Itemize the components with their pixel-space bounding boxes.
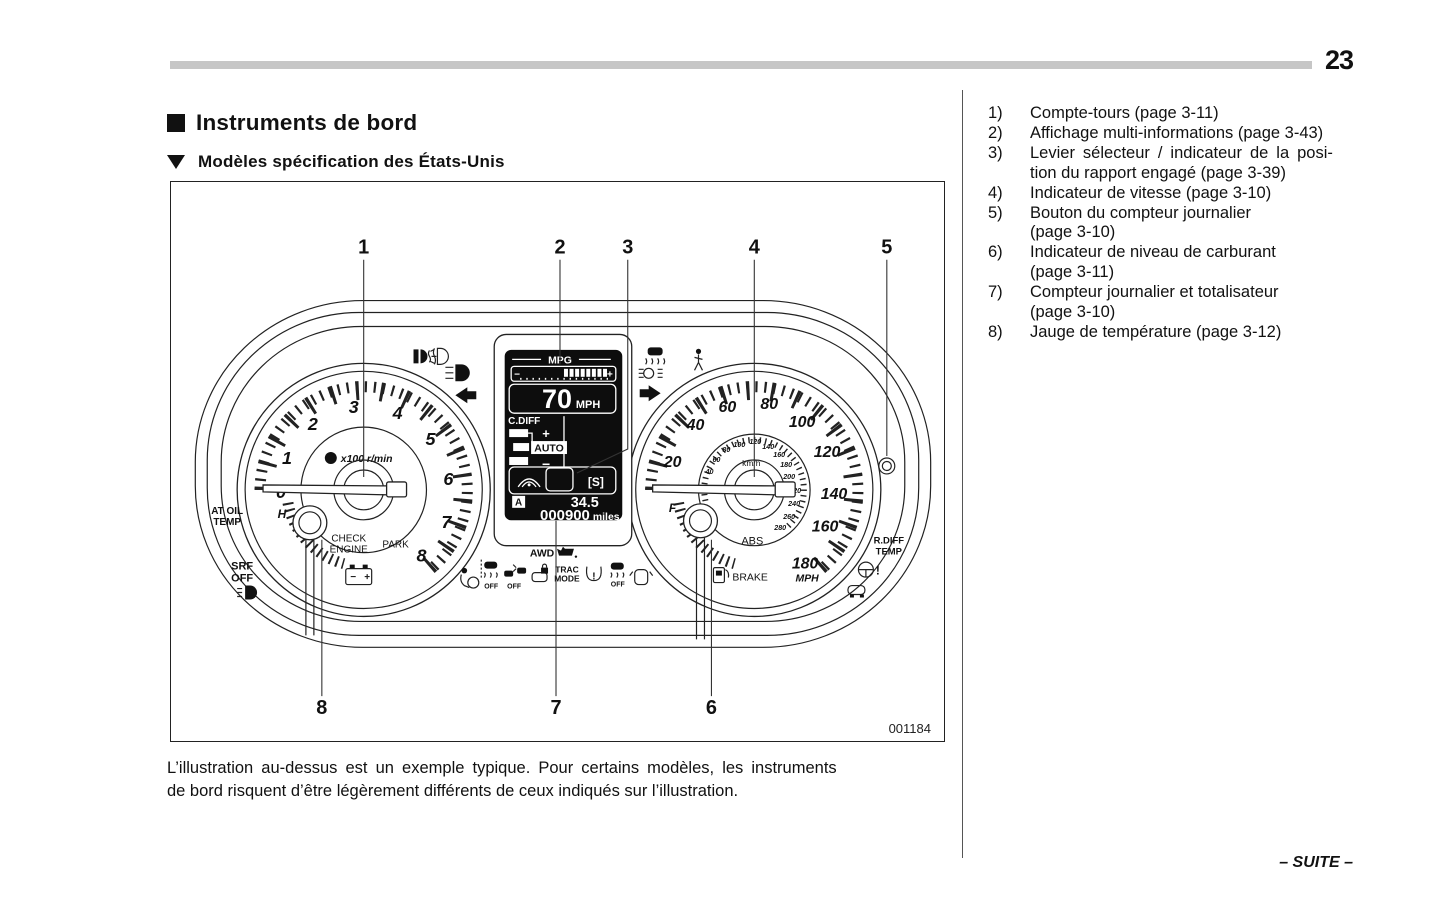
tacho-number-5: 5 xyxy=(425,429,436,449)
legend-item-text: Bouton du compteur journalier xyxy=(1030,204,1251,224)
header-rule xyxy=(170,61,1312,69)
legend-item-7: 7) Compteur journalier et totalisateur (… xyxy=(988,283,1358,323)
door-open-icon xyxy=(630,570,653,585)
svg-text:200: 200 xyxy=(782,473,795,481)
subsection-title-row: Modèles spécification des États-Unis xyxy=(167,152,505,172)
svg-text:−: − xyxy=(542,456,550,472)
legend-list: 1) Compte-tours (page 3-11) 2) Affichage… xyxy=(988,104,1358,343)
vdc-off-icon xyxy=(481,560,497,579)
legend-item-5: 5) Bouton du compteur journalier (page 3… xyxy=(988,204,1358,244)
caption-line-1: L’illustration au-dessus est un exemple … xyxy=(167,757,967,780)
legend-item-text: tion du rapport engagé (page 3-39) xyxy=(1030,164,1333,184)
legend-item-text: Affichage multi-informations (page 3-43) xyxy=(1030,124,1323,144)
right-turn-indicator-icon xyxy=(640,385,661,401)
speedo-number-180: 180 xyxy=(792,556,819,573)
page-number: 23 xyxy=(1240,45,1353,76)
tacho-unit-dot xyxy=(325,452,337,464)
svg-text:180: 180 xyxy=(780,461,792,469)
legend-item-text: Compteur journalier et totalisateur xyxy=(1030,283,1279,303)
cdiff-label: C.DIFF xyxy=(508,416,540,427)
page-footer-suite: – SUITE – xyxy=(1150,854,1353,872)
cdiff-auto-label: AUTO xyxy=(534,444,563,455)
headlight-leveling-icon xyxy=(237,586,257,600)
svg-text:120: 120 xyxy=(749,438,761,446)
tacho-unit-label: x100 r/min xyxy=(340,454,393,465)
speedo-number-40: 40 xyxy=(686,417,705,434)
odometer-unit: miles xyxy=(593,512,620,523)
multi-information-display: MPG − + 70 MPH xyxy=(505,350,622,523)
svg-text:−: − xyxy=(514,369,520,380)
svg-text:!: ! xyxy=(592,572,595,583)
legend-item-4: 4) Indicateur de vitesse (page 3-10) xyxy=(988,184,1358,204)
legend-item-text: Levier sélecteur / indicateur de la posi… xyxy=(1030,144,1333,164)
check-label: CHECK xyxy=(331,534,366,545)
pedestrian-warning-icon xyxy=(695,349,703,371)
trac-mode-label-2: MODE xyxy=(554,574,580,584)
svg-text:60: 60 xyxy=(712,456,720,464)
legend-item-number: 8) xyxy=(988,323,1030,343)
caption-line-2: de bord risquent d’être légèrement diffé… xyxy=(167,780,967,803)
instrument-cluster-drawing: 0 1 2 3 4 5 6 7 8 x100 r/min CHECK ENGIN… xyxy=(171,182,944,741)
instrument-cluster-figure: 0 1 2 3 4 5 6 7 8 x100 r/min CHECK ENGIN… xyxy=(170,181,945,742)
triangle-marker-icon xyxy=(167,155,185,169)
temp-h-label: H xyxy=(278,507,287,521)
svg-text:!: ! xyxy=(876,564,880,578)
callout-6: 6 xyxy=(706,697,717,719)
figure-caption: L’illustration au-dessus est un exemple … xyxy=(167,757,967,803)
left-turn-indicator-icon xyxy=(455,387,476,403)
legend-item-number: 4) xyxy=(988,184,1030,204)
svg-text:280: 280 xyxy=(773,524,786,532)
tacho-number-8: 8 xyxy=(417,546,427,566)
callout-4: 4 xyxy=(749,237,760,259)
engine-label: ENGINE xyxy=(330,545,369,556)
tail-light-car-icon xyxy=(848,586,865,598)
svg-text:140: 140 xyxy=(762,443,774,451)
legend-item-2: 2) Affichage multi-informations (page 3-… xyxy=(988,124,1358,144)
rdiff-temp-label-2: TEMP xyxy=(876,547,902,558)
vdc-icon xyxy=(646,347,665,364)
tacho-number-3: 3 xyxy=(349,397,359,417)
speedo-number-100: 100 xyxy=(789,414,816,431)
callout-5: 5 xyxy=(881,237,892,259)
svg-text:+: + xyxy=(542,426,550,441)
legend-item-text: (page 3-10) xyxy=(1030,223,1251,243)
gear-s-label: [S] xyxy=(588,475,604,489)
svg-text:80: 80 xyxy=(722,446,730,454)
speedo-number-80: 80 xyxy=(760,396,778,413)
trip-a-label: A xyxy=(515,497,522,508)
svg-text:100: 100 xyxy=(733,441,745,449)
legend-item-number: 6) xyxy=(988,243,1030,283)
svg-text:160: 160 xyxy=(773,451,785,459)
vdc-off-label: OFF xyxy=(484,584,498,591)
speedo-number-60: 60 xyxy=(719,399,737,416)
precollision-off-icon xyxy=(504,565,526,577)
legend-item-text: (page 3-11) xyxy=(1030,263,1276,283)
svg-text:260: 260 xyxy=(782,513,795,521)
park-label: PARK xyxy=(382,540,409,551)
tacho-number-4: 4 xyxy=(392,403,403,423)
kmh-unit-label: km/h xyxy=(742,458,761,468)
callout-3: 3 xyxy=(622,237,633,259)
trip-meter-button xyxy=(879,458,895,474)
power-steering-warning-icon: ! xyxy=(858,562,879,577)
high-beam-icon xyxy=(445,364,469,381)
legend-item-number: 3) xyxy=(988,144,1030,184)
svg-text:240: 240 xyxy=(787,500,800,508)
awd-label: AWD xyxy=(530,549,555,560)
odometer-value: 000900 xyxy=(540,507,590,524)
digital-speed-unit: MPH xyxy=(576,399,600,411)
manual-page: 23 Instruments de bord Modèles spécifica… xyxy=(0,0,1445,909)
speedo-unit-label: MPH xyxy=(795,574,819,585)
traction-off-label: OFF xyxy=(611,582,625,589)
tacho-number-1: 1 xyxy=(282,448,292,468)
section-square-marker xyxy=(167,114,185,132)
legend-item-3: 3) Levier sélecteur / indicateur de la p… xyxy=(988,144,1358,184)
legend-item-number: 2) xyxy=(988,124,1030,144)
srf-label-1: SRF xyxy=(231,561,253,573)
svg-text:40: 40 xyxy=(704,468,713,476)
oil-pressure-icon xyxy=(557,547,577,558)
legend-item-number: 5) xyxy=(988,204,1030,244)
front-fog-light-icon xyxy=(639,368,663,378)
speedo-number-140: 140 xyxy=(821,486,848,503)
tpms-icon: ! xyxy=(587,567,602,583)
rdiff-temp-label-1: R.DIFF xyxy=(874,536,905,547)
fuel-f-label: F xyxy=(669,501,677,515)
legend-item-6: 6) Indicateur de niveau de carburant (pa… xyxy=(988,243,1358,283)
speedo-number-120: 120 xyxy=(814,444,841,461)
legend-item-text: Indicateur de vitesse (page 3-10) xyxy=(1030,184,1271,204)
section-title: Instruments de bord xyxy=(196,110,417,136)
legend-item-text: Indicateur de niveau de carburant xyxy=(1030,243,1276,263)
at-oil-temp-label-2: TEMP xyxy=(213,517,241,528)
legend-item-text: (page 3-10) xyxy=(1030,303,1279,323)
callout-1: 1 xyxy=(358,237,369,259)
legend-item-text: Compte-tours (page 3-11) xyxy=(1030,104,1219,124)
digital-speed-value: 70 xyxy=(542,384,572,414)
airbag-icon xyxy=(461,568,479,588)
legend-item-8: 8) Jauge de température (page 3-12) xyxy=(988,323,1358,343)
callout-2: 2 xyxy=(554,237,565,259)
legend-item-text: Jauge de température (page 3-12) xyxy=(1030,323,1281,343)
legend-item-number: 7) xyxy=(988,283,1030,323)
legend-item-1: 1) Compte-tours (page 3-11) xyxy=(988,104,1358,124)
section-title-row: Instruments de bord xyxy=(167,110,417,136)
tacho-number-7: 7 xyxy=(441,512,452,532)
abs-label: ABS xyxy=(741,536,763,548)
column-divider xyxy=(962,90,963,858)
callout-8: 8 xyxy=(316,697,327,719)
tacho-number-6: 6 xyxy=(443,469,454,489)
srf-label-2: OFF xyxy=(231,573,253,585)
precollision-off-label: OFF xyxy=(507,584,521,591)
brake-label: BRAKE xyxy=(732,573,767,584)
tacho-number-2: 2 xyxy=(307,414,318,434)
figure-code: 001184 xyxy=(889,721,931,736)
speedo-number-160: 160 xyxy=(812,519,839,536)
callout-7: 7 xyxy=(550,697,561,719)
speedo-number-20: 20 xyxy=(663,454,682,471)
traction-off-icon xyxy=(611,563,624,578)
subsection-title: Modèles spécification des États-Unis xyxy=(198,152,505,172)
legend-item-number: 1) xyxy=(988,104,1030,124)
at-oil-temp-label-1: AT OIL xyxy=(211,506,243,517)
security-icon xyxy=(532,564,548,581)
